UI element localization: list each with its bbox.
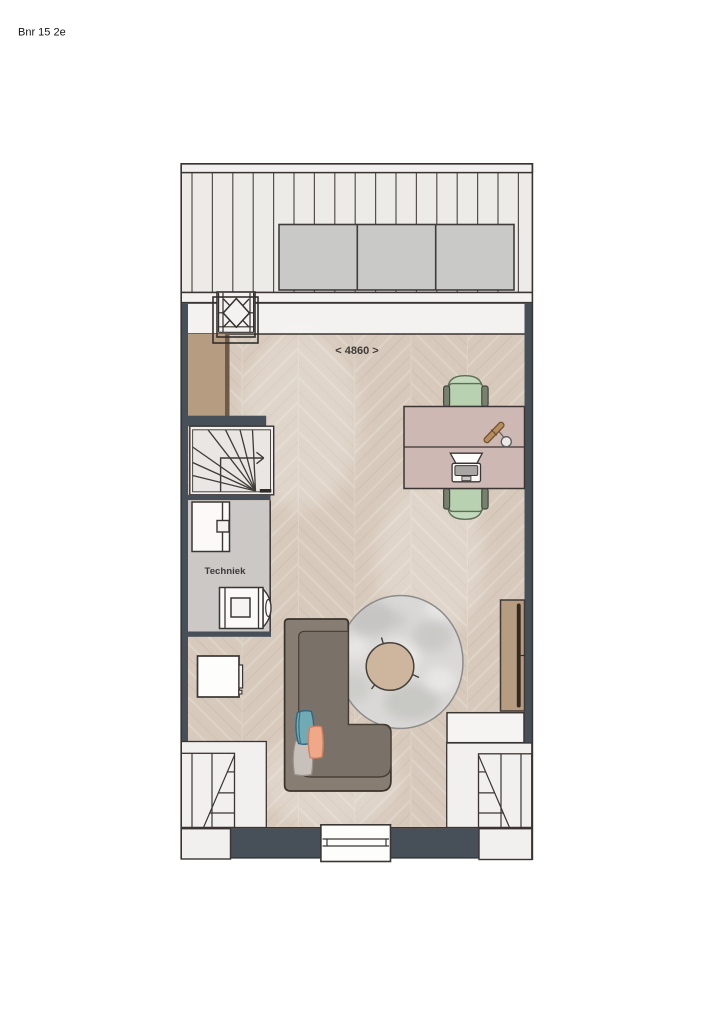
svg-text:< 4860 >: < 4860 > — [335, 345, 378, 357]
svg-text:Bnr 15 2e: Bnr 15 2e — [18, 27, 66, 39]
svg-text:Techniek: Techniek — [205, 566, 247, 577]
